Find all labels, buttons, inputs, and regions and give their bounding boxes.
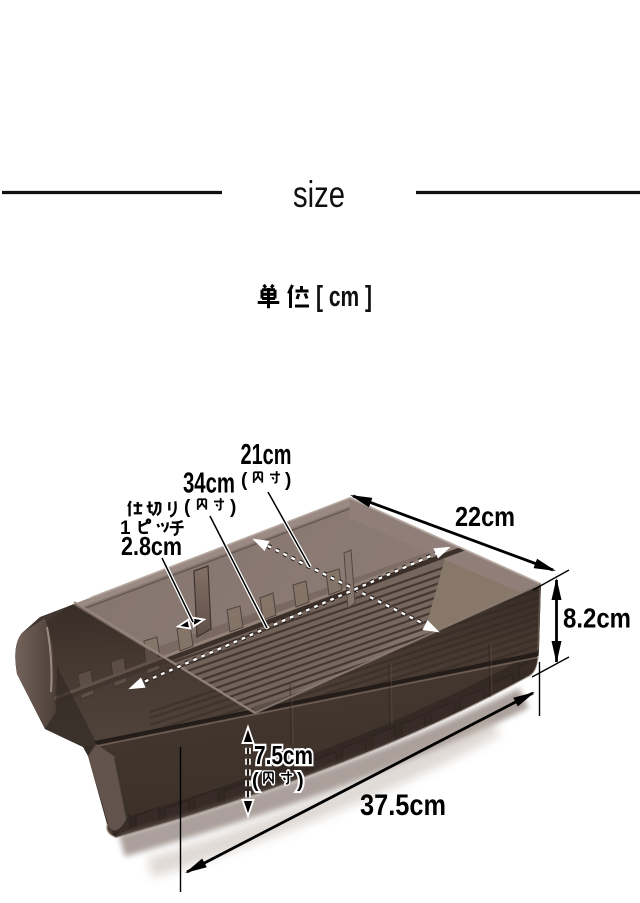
svg-text:): ) bbox=[230, 497, 236, 518]
svg-text:34cm: 34cm bbox=[183, 468, 235, 500]
svg-text:7.5cm: 7.5cm bbox=[254, 740, 313, 770]
svg-text:[ cm ]: [ cm ] bbox=[316, 281, 372, 313]
svg-text:37.5cm: 37.5cm bbox=[360, 789, 446, 822]
svg-text:8.2cm: 8.2cm bbox=[563, 603, 631, 634]
svg-text:size: size bbox=[293, 174, 345, 215]
svg-text:(: ( bbox=[252, 770, 259, 792]
svg-text:): ) bbox=[297, 770, 304, 792]
svg-text:(: ( bbox=[184, 497, 191, 518]
svg-text:): ) bbox=[285, 470, 291, 491]
svg-text:22cm: 22cm bbox=[455, 501, 515, 532]
svg-text:(: ( bbox=[241, 470, 248, 491]
svg-text:2.8cm: 2.8cm bbox=[121, 531, 182, 561]
svg-text:21cm: 21cm bbox=[241, 439, 292, 471]
